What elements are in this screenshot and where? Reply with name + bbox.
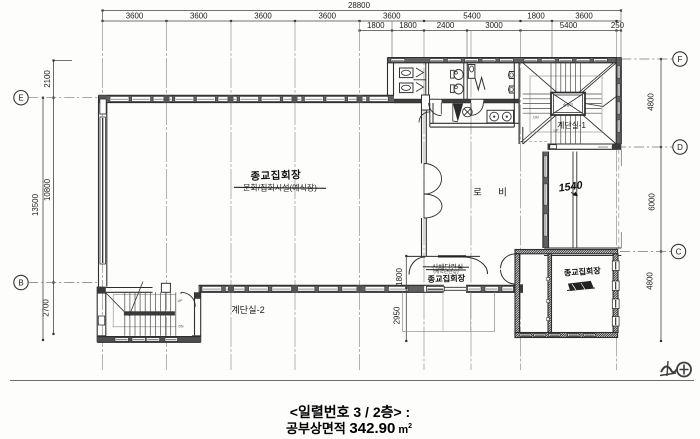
svg-text:UP: UP (178, 299, 183, 303)
svg-text:3600: 3600 (575, 12, 593, 21)
svg-text:로: 로 (473, 188, 482, 199)
svg-text:5400: 5400 (463, 12, 481, 21)
svg-text:계단실-1: 계단실-1 (557, 120, 586, 130)
svg-text:DN: DN (179, 325, 184, 329)
svg-text:3600: 3600 (319, 12, 337, 21)
svg-text:1800: 1800 (527, 12, 545, 21)
svg-text:비: 비 (498, 188, 507, 199)
svg-text:C: C (676, 247, 682, 256)
svg-text:3000: 3000 (485, 21, 503, 30)
svg-text:13500: 13500 (31, 193, 40, 216)
svg-text:F: F (678, 55, 683, 64)
svg-text:B: B (18, 278, 23, 287)
svg-text:3600: 3600 (126, 12, 144, 21)
svg-text:계단실-2: 계단실-2 (231, 304, 265, 315)
svg-text:28800: 28800 (348, 1, 371, 10)
svg-text:E: E (18, 94, 23, 103)
svg-text:공부상면적 342.90 m2: 공부상면적 342.90 m2 (286, 420, 412, 437)
svg-text:<일렬번호 3 / 2층> :: <일렬번호 3 / 2층> : (290, 404, 410, 420)
svg-text:승강기: 승강기 (563, 102, 573, 107)
svg-text:250: 250 (611, 21, 625, 30)
svg-text:3600: 3600 (190, 12, 208, 21)
svg-text:2400: 2400 (437, 21, 455, 30)
svg-text:종교집회장: 종교집회장 (250, 168, 301, 183)
svg-text:종교집회장: 종교집회장 (427, 273, 465, 284)
svg-text:3600: 3600 (254, 12, 272, 21)
svg-text:10800: 10800 (43, 178, 52, 201)
svg-text:6000: 6000 (648, 193, 657, 211)
svg-text:D: D (677, 143, 683, 152)
svg-text:2950: 2950 (393, 306, 402, 324)
svg-text:1800: 1800 (367, 21, 385, 30)
svg-text:2100: 2100 (43, 70, 52, 88)
svg-text:1800: 1800 (395, 268, 404, 286)
svg-text:DN: DN (533, 116, 539, 120)
svg-text:4800: 4800 (646, 272, 655, 290)
svg-text:1800: 1800 (399, 21, 417, 30)
svg-text:5400: 5400 (560, 21, 578, 30)
svg-text:3600: 3600 (383, 12, 401, 21)
svg-text:4800: 4800 (647, 93, 656, 111)
